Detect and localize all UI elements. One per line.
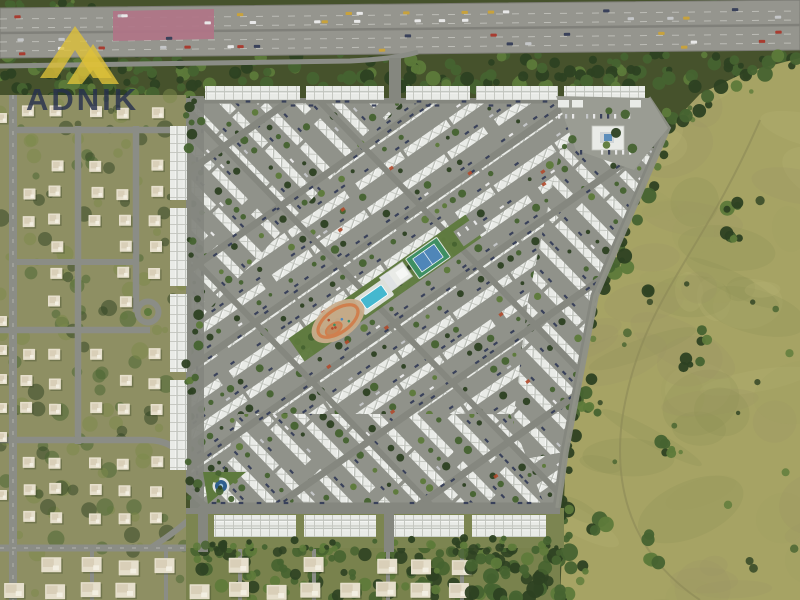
tree bbox=[370, 320, 376, 326]
villa-roof bbox=[156, 560, 167, 568]
tree bbox=[477, 420, 482, 425]
tree bbox=[724, 63, 733, 72]
tree bbox=[730, 55, 740, 65]
villa-roof bbox=[352, 591, 358, 596]
tree bbox=[238, 484, 245, 491]
tree bbox=[444, 267, 451, 274]
scrub bbox=[117, 426, 128, 437]
villa-roof bbox=[31, 195, 35, 199]
villa-roof bbox=[57, 274, 61, 278]
tree bbox=[350, 574, 356, 580]
tree bbox=[227, 385, 234, 392]
scrub bbox=[38, 232, 52, 246]
tree bbox=[460, 72, 474, 86]
tree bbox=[299, 236, 306, 243]
tree bbox=[290, 569, 301, 580]
villa-roof bbox=[191, 586, 202, 594]
tree bbox=[176, 76, 183, 83]
tree bbox=[5, 0, 13, 8]
car bbox=[237, 45, 243, 48]
car bbox=[732, 8, 738, 11]
tree bbox=[642, 284, 655, 297]
tree bbox=[637, 166, 641, 170]
villa-roof bbox=[302, 584, 313, 592]
tree bbox=[724, 501, 732, 509]
tree bbox=[431, 585, 441, 595]
tree bbox=[490, 366, 497, 373]
villa-roof bbox=[3, 322, 6, 325]
tree bbox=[309, 297, 314, 302]
car bbox=[321, 20, 327, 23]
tree bbox=[589, 56, 597, 64]
tree bbox=[564, 561, 577, 574]
villa-roof bbox=[157, 519, 161, 523]
tree bbox=[393, 489, 399, 495]
tree bbox=[302, 161, 306, 165]
tree bbox=[532, 572, 545, 585]
tree bbox=[16, 0, 23, 7]
tree bbox=[451, 65, 462, 76]
car bbox=[503, 10, 509, 13]
villa-roof bbox=[124, 465, 128, 469]
car bbox=[166, 37, 172, 40]
tree bbox=[488, 59, 495, 66]
car bbox=[227, 45, 233, 48]
villa-roof bbox=[127, 302, 131, 306]
villa-roof bbox=[56, 192, 60, 196]
tree bbox=[731, 80, 743, 92]
tree bbox=[453, 327, 459, 333]
tree bbox=[527, 59, 538, 70]
scrub bbox=[113, 148, 123, 158]
tree bbox=[622, 342, 627, 347]
scrub bbox=[120, 311, 137, 328]
car bbox=[17, 38, 23, 41]
tree bbox=[754, 379, 760, 385]
tree bbox=[350, 484, 357, 491]
tree bbox=[226, 161, 230, 165]
villa-roof bbox=[55, 220, 59, 224]
tree bbox=[257, 300, 262, 305]
tree bbox=[590, 525, 601, 536]
car bbox=[759, 40, 765, 43]
tree bbox=[623, 328, 632, 337]
tree bbox=[749, 89, 754, 94]
car bbox=[603, 9, 609, 12]
tree bbox=[701, 90, 714, 103]
car bbox=[683, 17, 689, 20]
villa-roof bbox=[278, 593, 284, 598]
tree bbox=[647, 299, 653, 305]
villa-roof bbox=[157, 247, 161, 251]
villa-roof bbox=[56, 489, 60, 493]
tree bbox=[265, 473, 270, 478]
tree bbox=[771, 49, 784, 62]
tree bbox=[614, 182, 619, 187]
tree bbox=[267, 390, 274, 397]
tree bbox=[434, 568, 440, 574]
tree bbox=[252, 109, 259, 116]
tree bbox=[442, 462, 450, 470]
tree bbox=[523, 398, 530, 405]
villa-roof bbox=[30, 355, 34, 359]
tree bbox=[516, 250, 521, 255]
tree bbox=[225, 198, 232, 205]
tree bbox=[519, 564, 529, 574]
tree bbox=[194, 556, 202, 564]
villa-roof bbox=[423, 568, 429, 573]
tree bbox=[309, 394, 316, 401]
tree bbox=[269, 165, 273, 169]
car bbox=[462, 19, 468, 22]
car bbox=[250, 21, 256, 24]
tree bbox=[730, 235, 738, 243]
tree bbox=[195, 563, 208, 576]
tree bbox=[750, 299, 755, 304]
villa-roof bbox=[166, 566, 172, 571]
tree bbox=[225, 276, 232, 283]
tree bbox=[401, 582, 409, 590]
tree bbox=[432, 375, 437, 380]
scrub bbox=[124, 527, 140, 543]
villa-roof bbox=[312, 591, 318, 596]
villa-roof bbox=[230, 559, 241, 567]
tree bbox=[445, 333, 450, 338]
tree bbox=[446, 136, 450, 140]
tree bbox=[671, 423, 677, 429]
villa-roof bbox=[412, 584, 423, 592]
tree bbox=[335, 342, 343, 350]
villa-roof bbox=[125, 410, 129, 414]
tree bbox=[289, 278, 294, 283]
tree bbox=[680, 353, 692, 365]
tree bbox=[643, 54, 652, 63]
scrub bbox=[135, 442, 152, 459]
scrub bbox=[67, 443, 80, 456]
tree bbox=[483, 568, 499, 584]
tree bbox=[245, 452, 250, 457]
villa-roof bbox=[124, 273, 128, 277]
villa-roof bbox=[305, 559, 316, 567]
tree bbox=[371, 351, 377, 357]
villa-roof bbox=[389, 567, 395, 572]
scrub bbox=[101, 300, 117, 316]
tree bbox=[230, 418, 235, 423]
tree bbox=[309, 168, 317, 176]
tree bbox=[582, 568, 589, 575]
tree bbox=[186, 80, 198, 92]
scrub bbox=[152, 325, 162, 335]
tree bbox=[334, 550, 347, 563]
tree bbox=[435, 143, 439, 147]
tree bbox=[548, 492, 553, 497]
villa-roof bbox=[120, 562, 131, 570]
tree bbox=[724, 206, 731, 213]
tree bbox=[330, 281, 336, 287]
tree bbox=[50, 1, 57, 8]
tree bbox=[360, 324, 368, 332]
tree bbox=[238, 379, 244, 385]
villa-roof bbox=[388, 590, 394, 595]
tree bbox=[497, 262, 504, 269]
tree bbox=[276, 173, 282, 179]
villa-roof bbox=[16, 591, 22, 596]
villa-roof bbox=[82, 584, 93, 592]
villa-roof bbox=[241, 590, 247, 595]
tree bbox=[475, 553, 486, 564]
villa-roof bbox=[155, 274, 159, 278]
tree bbox=[516, 317, 520, 321]
roundabout-island bbox=[144, 308, 152, 316]
tree bbox=[281, 316, 287, 322]
tree bbox=[588, 193, 595, 200]
tree bbox=[359, 194, 366, 201]
villa-roof bbox=[56, 410, 60, 414]
tree bbox=[537, 63, 548, 74]
tree bbox=[398, 168, 403, 173]
villa-roof bbox=[127, 591, 133, 596]
car bbox=[160, 46, 166, 49]
villa-roof bbox=[127, 381, 131, 385]
tree bbox=[749, 564, 758, 573]
tree bbox=[307, 72, 320, 85]
scrub bbox=[82, 275, 91, 284]
car bbox=[379, 49, 385, 52]
villa-roof bbox=[43, 559, 54, 567]
villa-roof bbox=[159, 113, 163, 117]
tree bbox=[424, 181, 432, 189]
villa-roof bbox=[99, 193, 103, 197]
tree bbox=[693, 104, 707, 118]
tree bbox=[510, 563, 521, 574]
villa-roof bbox=[27, 381, 31, 385]
tree bbox=[512, 353, 516, 357]
tree bbox=[574, 79, 581, 86]
car bbox=[414, 19, 420, 22]
tree bbox=[279, 215, 286, 222]
tree bbox=[219, 269, 224, 274]
tree bbox=[586, 373, 598, 385]
villa-roof bbox=[31, 490, 35, 494]
villa-roof bbox=[3, 438, 6, 441]
tree bbox=[418, 437, 425, 444]
tree bbox=[220, 393, 224, 397]
villa-roof bbox=[47, 586, 58, 594]
car bbox=[98, 46, 104, 49]
tree bbox=[279, 488, 283, 492]
tree bbox=[284, 182, 291, 189]
villa-roof bbox=[6, 585, 17, 593]
tree bbox=[644, 529, 654, 539]
tree bbox=[491, 558, 502, 569]
tree bbox=[785, 349, 793, 357]
car bbox=[488, 11, 494, 14]
tree bbox=[554, 584, 565, 595]
car bbox=[667, 17, 673, 20]
tree bbox=[474, 244, 482, 252]
car bbox=[507, 42, 513, 45]
tree bbox=[363, 388, 371, 396]
villa-roof bbox=[379, 560, 390, 568]
villa-roof bbox=[83, 559, 94, 567]
scrub bbox=[32, 172, 39, 179]
villa-roof bbox=[158, 462, 162, 466]
tree bbox=[447, 167, 452, 172]
tree bbox=[652, 556, 666, 570]
car bbox=[564, 33, 570, 36]
tree bbox=[684, 281, 689, 286]
tree bbox=[613, 219, 618, 224]
tree bbox=[343, 437, 349, 443]
tree bbox=[617, 248, 632, 263]
tree bbox=[133, 68, 140, 75]
tree bbox=[415, 190, 420, 195]
car bbox=[490, 34, 496, 37]
tree bbox=[757, 66, 773, 82]
tree bbox=[456, 260, 461, 265]
villa-roof bbox=[93, 565, 99, 570]
tree bbox=[477, 209, 485, 217]
tree bbox=[598, 400, 603, 405]
villa-roof bbox=[96, 520, 100, 524]
tree bbox=[401, 364, 406, 369]
tree bbox=[426, 315, 430, 319]
tree bbox=[554, 72, 563, 81]
tree bbox=[351, 169, 355, 173]
villa-roof bbox=[96, 463, 100, 467]
tree bbox=[612, 459, 617, 464]
tree bbox=[620, 53, 628, 61]
villa-roof bbox=[3, 496, 6, 499]
tree bbox=[662, 108, 671, 117]
tree bbox=[567, 250, 571, 254]
tree bbox=[239, 280, 244, 285]
tree bbox=[502, 357, 510, 365]
villa-roof bbox=[30, 463, 34, 467]
tree bbox=[207, 433, 214, 440]
tree bbox=[620, 187, 627, 194]
tree bbox=[487, 335, 494, 342]
tree bbox=[320, 220, 328, 228]
tree bbox=[383, 210, 391, 218]
scrub bbox=[131, 342, 148, 359]
villa-roof bbox=[57, 593, 63, 598]
villa-roof bbox=[97, 490, 101, 494]
scrub bbox=[24, 233, 36, 245]
scrub bbox=[153, 228, 161, 236]
tree bbox=[542, 464, 546, 468]
tree bbox=[290, 422, 298, 430]
tree bbox=[396, 454, 404, 462]
tree bbox=[617, 67, 627, 77]
tree bbox=[303, 123, 310, 130]
tree bbox=[697, 325, 707, 335]
tree bbox=[269, 293, 273, 297]
villa-roof bbox=[422, 591, 428, 596]
tree bbox=[772, 306, 779, 313]
tree bbox=[534, 293, 541, 300]
tree bbox=[263, 68, 271, 76]
tree bbox=[550, 387, 555, 392]
tree bbox=[6, 68, 16, 78]
tree bbox=[544, 199, 548, 203]
tree bbox=[521, 281, 525, 285]
masterplan-scene: ADNIK bbox=[0, 0, 800, 600]
car bbox=[405, 34, 411, 37]
villa-roof bbox=[53, 566, 59, 571]
tree bbox=[320, 255, 325, 260]
tree bbox=[338, 176, 345, 183]
scrub bbox=[31, 589, 39, 597]
tree bbox=[662, 52, 670, 60]
tree bbox=[435, 209, 440, 214]
tree bbox=[437, 457, 441, 461]
tree bbox=[584, 266, 589, 271]
tree bbox=[220, 426, 224, 430]
tree bbox=[470, 491, 476, 497]
car bbox=[19, 52, 25, 55]
tree bbox=[369, 255, 374, 260]
tree bbox=[426, 71, 441, 86]
tree bbox=[598, 517, 614, 533]
tree bbox=[404, 72, 417, 85]
villa-roof bbox=[126, 519, 130, 523]
tree bbox=[518, 464, 526, 472]
scrub bbox=[121, 139, 131, 149]
tree bbox=[442, 203, 447, 208]
villa-roof bbox=[268, 586, 279, 594]
scrub bbox=[163, 89, 178, 104]
tree bbox=[436, 417, 441, 422]
tree bbox=[594, 409, 602, 417]
car bbox=[525, 42, 531, 45]
tree bbox=[574, 335, 582, 343]
villa-roof bbox=[130, 569, 136, 574]
tree bbox=[546, 161, 554, 169]
villa-roof bbox=[377, 583, 388, 591]
tree bbox=[216, 329, 221, 334]
villa-roof bbox=[157, 492, 161, 496]
tree bbox=[208, 465, 215, 472]
villa-roof bbox=[231, 583, 242, 591]
car bbox=[775, 31, 781, 34]
car bbox=[775, 16, 781, 19]
tree bbox=[428, 448, 433, 453]
scrub bbox=[96, 367, 109, 380]
car bbox=[461, 11, 467, 14]
tree bbox=[632, 215, 643, 226]
villa-roof bbox=[201, 593, 207, 598]
tree bbox=[369, 114, 376, 121]
tree bbox=[591, 65, 604, 78]
tree bbox=[312, 262, 317, 267]
tree bbox=[455, 437, 463, 445]
villa-roof bbox=[155, 384, 159, 388]
tree bbox=[565, 505, 574, 514]
tree bbox=[358, 548, 371, 561]
tree bbox=[267, 125, 273, 131]
villa-roof bbox=[126, 221, 130, 225]
tree bbox=[229, 67, 241, 79]
tree bbox=[270, 576, 280, 586]
car bbox=[237, 13, 243, 16]
tree bbox=[701, 52, 707, 58]
tree bbox=[233, 168, 240, 175]
tree bbox=[528, 473, 532, 477]
villa-roof bbox=[117, 584, 128, 592]
tree bbox=[702, 335, 712, 345]
tree bbox=[283, 142, 290, 149]
